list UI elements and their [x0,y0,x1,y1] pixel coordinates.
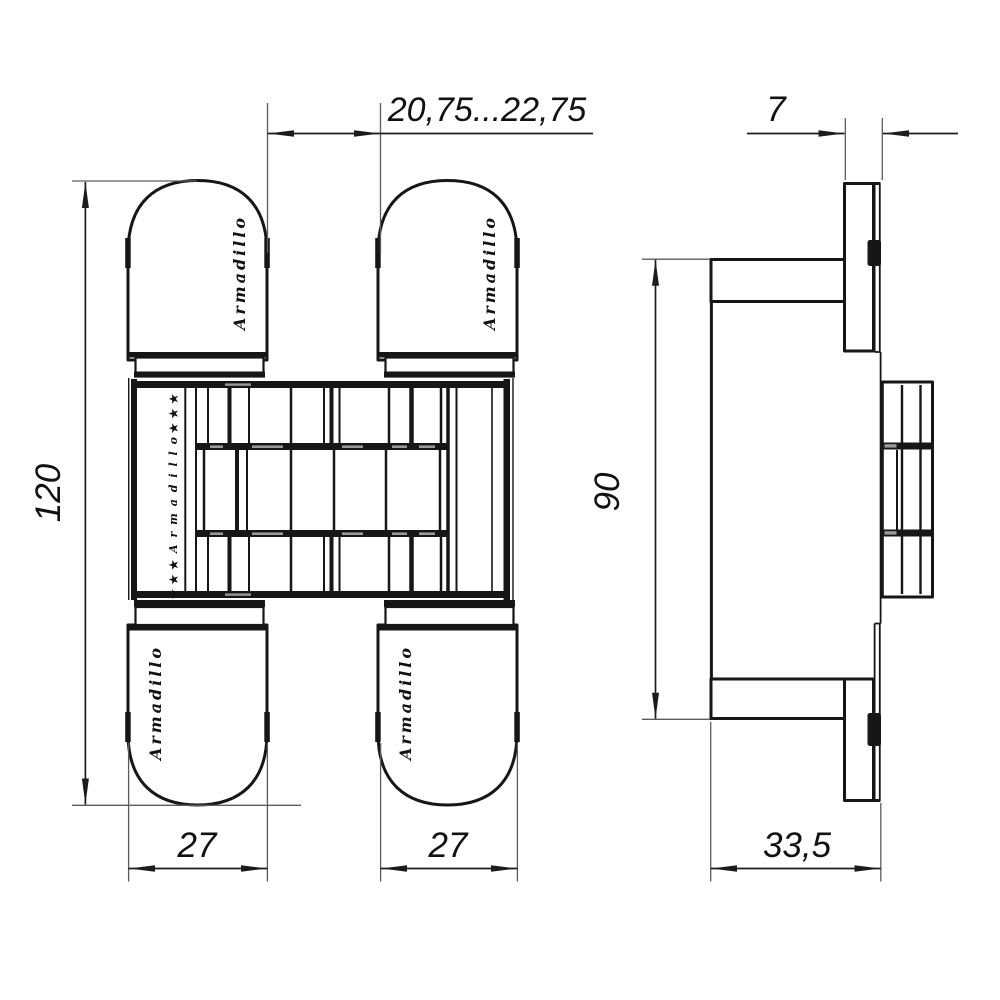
cap-top-left: Armadillo [125,181,270,378]
decor-column-text: Armadillo [167,437,180,554]
dim-27-left-label: 27 [177,826,218,865]
screw-top [868,240,882,266]
decor-stars-bottom: ★★★ [167,556,182,600]
front-view: ★★★ Armadillo ★★★ Armadillo Armadillo Ar… [29,91,593,882]
decor-column: ★★★ Armadillo ★★★ [167,390,182,600]
dim-7-label: 7 [766,90,787,129]
rail-highlights [210,383,435,595]
cap-top-right: Armadillo [375,181,520,378]
hinge-technical-drawing: ★★★ Armadillo ★★★ Armadillo Armadillo Ar… [0,0,1000,1000]
screw-bottom [868,713,882,746]
hinge-mechanism: ★★★ Armadillo ★★★ [129,378,513,600]
dimension-plate-thickness: 7 [747,90,958,180]
link-arms-top-band [208,388,441,443]
side-frame-body [711,258,845,720]
cap-bottom-left: Armadillo [125,600,270,805]
brand-logo-top-left: Armadillo [230,218,249,332]
side-knuckle [882,382,932,597]
brand-logo-top-right: Armadillo [480,218,499,332]
side-door-plate [845,184,882,801]
dim-90-label: 90 [588,472,627,511]
dimension-body-height: 90 [588,259,710,719]
dim-gap-label: 20,75...22,75 [387,91,587,129]
dim-27-right-label: 27 [428,826,469,865]
link-arms-middle-band [204,450,440,530]
brand-logo-bottom-left: Armadillo [146,648,165,762]
decor-stars-top: ★★★ [167,390,182,434]
side-view: 7 90 33,5 [588,90,958,882]
brand-logo-bottom-right: Armadillo [396,648,415,762]
dim-120-label: 120 [29,463,68,522]
dim-33-5-label: 33,5 [763,826,832,865]
link-arms-bottom-band [208,537,441,591]
cap-bottom-right: Armadillo [375,600,520,805]
drawing-canvas: ★★★ Armadillo ★★★ Armadillo Armadillo Ar… [0,0,1000,1000]
